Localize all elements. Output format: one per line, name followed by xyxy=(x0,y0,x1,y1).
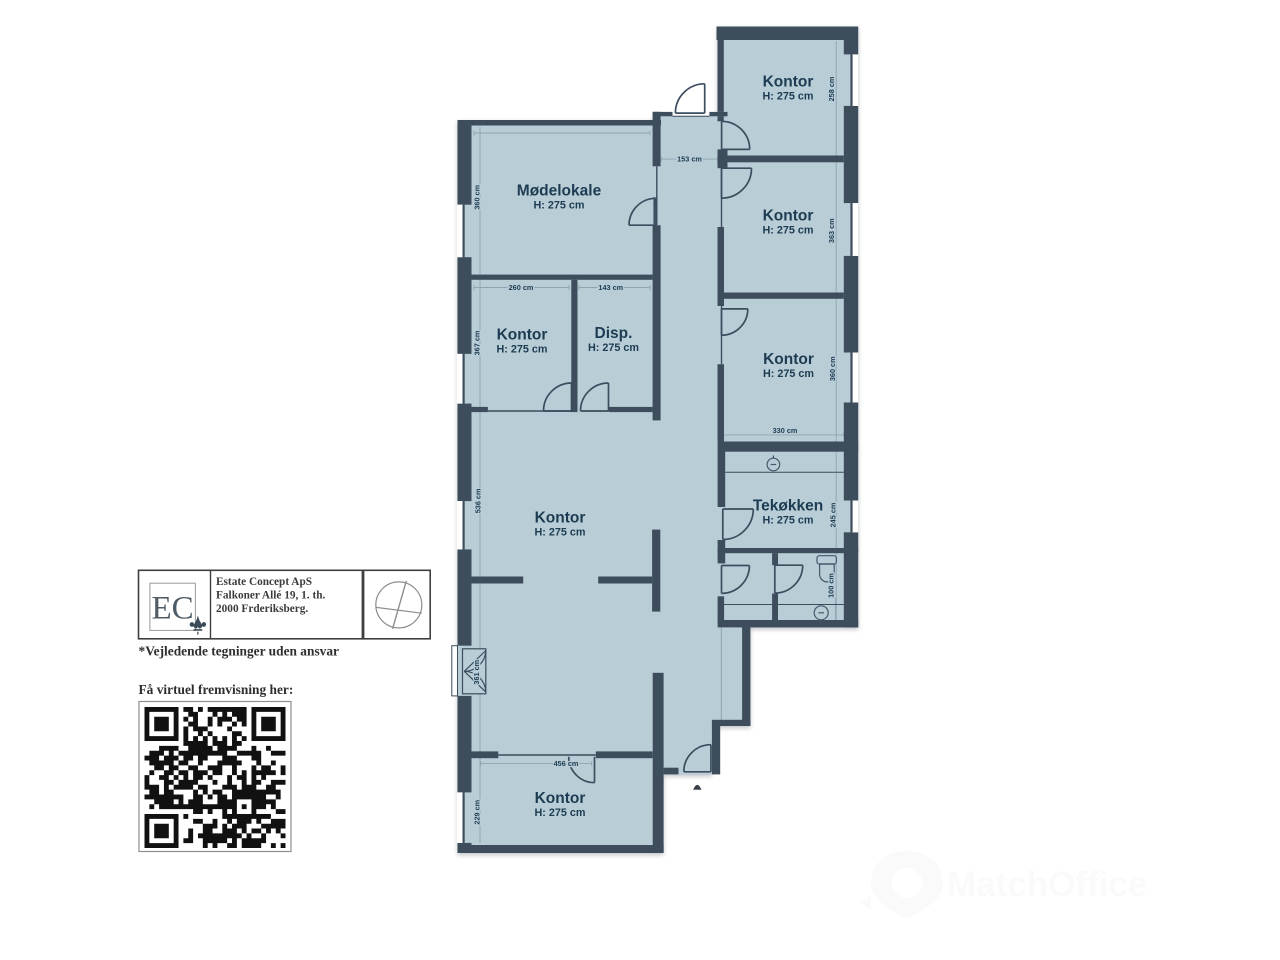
svg-text:153 cm: 153 cm xyxy=(677,155,702,164)
svg-text:143 cm: 143 cm xyxy=(598,283,623,292)
svg-text:456 cm: 456 cm xyxy=(554,759,579,768)
svg-text:H: 275 cm: H: 275 cm xyxy=(533,200,584,212)
svg-text:363 cm: 363 cm xyxy=(827,218,836,243)
svg-text:H: 275 cm: H: 275 cm xyxy=(763,368,814,380)
svg-text:330 cm: 330 cm xyxy=(773,426,798,435)
svg-text:H: 275 cm: H: 275 cm xyxy=(762,515,813,527)
svg-text:H: 275 cm: H: 275 cm xyxy=(762,225,813,237)
svg-text:MatchOffice: MatchOffice xyxy=(947,865,1147,904)
svg-text:258 cm: 258 cm xyxy=(827,76,836,101)
svg-text:H: 275 cm: H: 275 cm xyxy=(534,807,585,819)
svg-text:536 cm: 536 cm xyxy=(473,488,482,513)
svg-text:EC: EC xyxy=(152,591,194,627)
svg-text:H: 275 cm: H: 275 cm xyxy=(496,344,547,356)
svg-text:Kontor: Kontor xyxy=(535,510,586,527)
svg-text:229 cm: 229 cm xyxy=(472,799,481,824)
svg-text:Mødelokale: Mødelokale xyxy=(517,183,602,200)
svg-text:Falkoner Allé 19, 1. th.: Falkoner Allé 19, 1. th. xyxy=(216,589,325,601)
svg-text:Disp.: Disp. xyxy=(595,325,633,342)
svg-text:245 cm: 245 cm xyxy=(828,502,837,527)
svg-text:260 cm: 260 cm xyxy=(509,283,534,292)
svg-text:Kontor: Kontor xyxy=(763,351,814,368)
svg-text:Tekøkken: Tekøkken xyxy=(753,498,823,515)
svg-text:Kontor: Kontor xyxy=(535,790,586,807)
svg-text:Estate Concept ApS: Estate Concept ApS xyxy=(216,576,312,588)
svg-text:367 cm: 367 cm xyxy=(472,330,481,355)
svg-text:Kontor: Kontor xyxy=(763,208,814,225)
svg-text:Få virtuel fremvisning her:: Få virtuel fremvisning her: xyxy=(139,682,294,697)
svg-text:100 cm: 100 cm xyxy=(827,573,836,598)
svg-text:Kontor: Kontor xyxy=(497,327,548,344)
svg-text:360 cm: 360 cm xyxy=(828,356,837,381)
svg-text:*Vejledende tegninger uden ans: *Vejledende tegninger uden ansvar xyxy=(139,643,340,658)
svg-text:2000 Frderiksberg.: 2000 Frderiksberg. xyxy=(216,603,308,615)
svg-text:H: 275 cm: H: 275 cm xyxy=(762,91,813,103)
svg-text:H: 275 cm: H: 275 cm xyxy=(588,342,639,354)
svg-text:H: 275 cm: H: 275 cm xyxy=(534,527,585,539)
svg-text:360 cm: 360 cm xyxy=(472,184,481,209)
svg-text:361 cm: 361 cm xyxy=(472,659,481,684)
svg-text:Kontor: Kontor xyxy=(763,74,814,91)
